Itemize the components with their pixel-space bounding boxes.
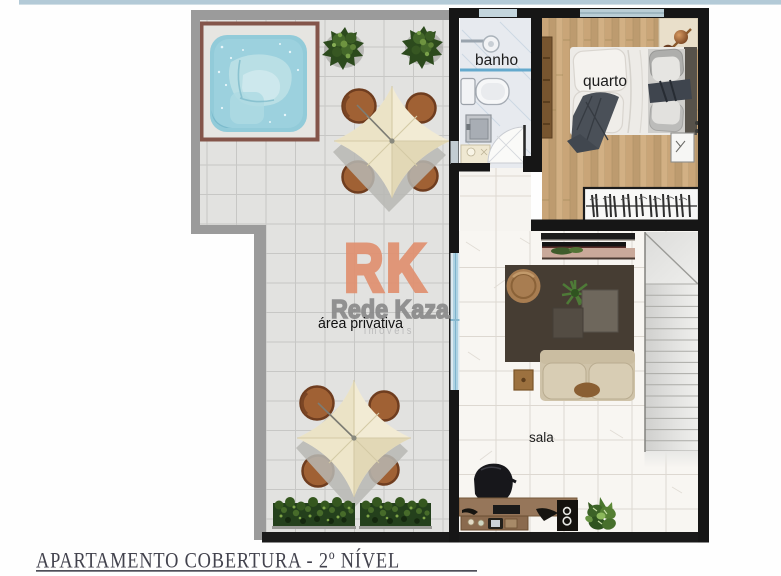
svg-text:área privativa: área privativa xyxy=(318,315,404,332)
svg-text:quarto: quarto xyxy=(583,73,627,90)
svg-text:sala: sala xyxy=(529,430,554,445)
svg-text:APARTAMENTO COBERTURA - 2º NÍV: APARTAMENTO COBERTURA - 2º NÍVEL xyxy=(36,548,400,573)
svg-text:banho: banho xyxy=(475,52,518,69)
